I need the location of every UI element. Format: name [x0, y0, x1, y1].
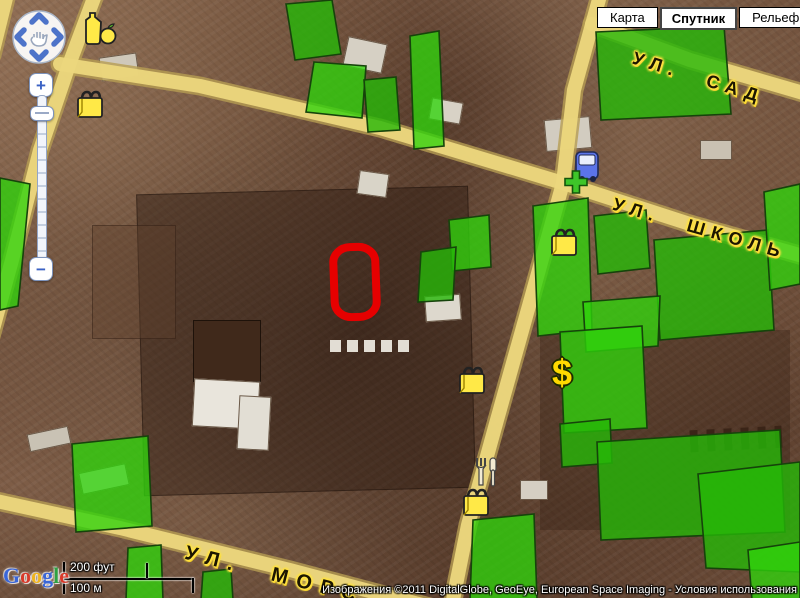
map-overlays: [0, 0, 800, 598]
pan-control[interactable]: [9, 7, 69, 67]
scale-bar: 200 фут 100 м: [60, 554, 210, 598]
attribution-bar: Изображения ©2011 DigitalGlobe, GeoEye, …: [322, 584, 797, 596]
logo-letter: o: [31, 563, 42, 589]
terms-of-use-link[interactable]: Условия использования: [675, 584, 797, 596]
scale-imperial-tick: [146, 563, 148, 578]
grocery-store-icon[interactable]: [80, 10, 122, 53]
imagery-copyright: Изображения ©2011 DigitalGlobe, GeoEye, …: [322, 584, 665, 596]
zoom-slider-handle[interactable]: [30, 106, 54, 121]
logo-letter: g: [42, 563, 53, 589]
google-logo[interactable]: Google: [3, 563, 69, 589]
pharmacy-cross-icon[interactable]: [564, 170, 588, 199]
selected-parcel-outline[interactable]: [333, 246, 377, 317]
map-canvas[interactable]: УЛ. САД УЛ. ШКОЛЬ УЛ. МОРС: [0, 0, 800, 598]
shopping-bag-icon[interactable]: [460, 484, 492, 523]
scale-imperial-label: 200 фут: [70, 560, 115, 574]
shopping-bag-icon[interactable]: [456, 362, 488, 401]
map-type-button-relief[interactable]: Рельеф: [739, 7, 800, 28]
zoom-in-button[interactable]: +: [29, 73, 53, 97]
zoom-control[interactable]: + −: [29, 73, 55, 281]
zoom-out-button[interactable]: −: [29, 257, 53, 281]
logo-letter: o: [20, 563, 31, 589]
logo-letter: e: [59, 563, 69, 589]
map-type-button-sputnik[interactable]: Спутник: [660, 7, 737, 30]
logo-letter: G: [3, 563, 20, 589]
scale-metric-label: 100 м: [70, 581, 102, 595]
highlighted-parcels: [0, 0, 800, 598]
shopping-bag-icon[interactable]: [74, 86, 106, 125]
scale-baseline: [63, 578, 194, 580]
shopping-bag-icon[interactable]: [548, 224, 580, 263]
map-type-button-karta[interactable]: Карта: [597, 7, 658, 28]
map-type-switcher: Карта Спутник Рельеф: [597, 7, 800, 30]
bank-icon[interactable]: $: [552, 352, 572, 394]
scale-metric-tick: [192, 578, 194, 593]
attribution-separator: -: [665, 584, 675, 596]
